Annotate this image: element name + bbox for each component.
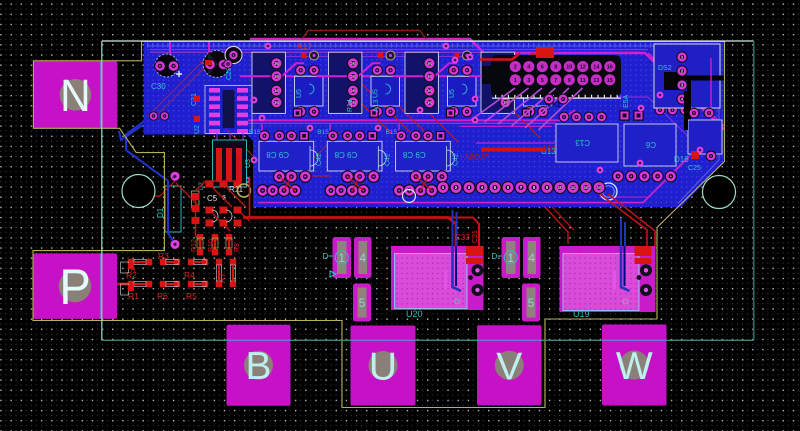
svg-text:D: D xyxy=(323,252,329,261)
svg-text:9: 9 xyxy=(568,78,571,84)
svg-text:R3: R3 xyxy=(158,251,169,261)
svg-text:7: 7 xyxy=(554,78,557,84)
svg-text:R17: R17 xyxy=(297,42,312,51)
svg-text:15: 15 xyxy=(607,78,613,84)
svg-text:C42: C42 xyxy=(384,153,391,166)
svg-text:W: W xyxy=(616,345,653,388)
svg-text:C9 C8: C9 C8 xyxy=(334,150,357,159)
svg-text:7SO6A I: 7SO6A I xyxy=(460,153,490,162)
svg-text:16: 16 xyxy=(274,61,280,66)
svg-text:R14: R14 xyxy=(347,99,354,112)
svg-text:B15: B15 xyxy=(317,129,329,136)
svg-text:16: 16 xyxy=(274,100,280,105)
svg-text:C42: C42 xyxy=(316,153,323,166)
svg-text:16: 16 xyxy=(274,74,280,79)
svg-text:12: 12 xyxy=(583,185,589,190)
svg-text:5: 5 xyxy=(541,78,544,84)
svg-text:16: 16 xyxy=(274,88,280,93)
svg-text:13: 13 xyxy=(593,78,599,84)
svg-text:16: 16 xyxy=(350,61,356,66)
svg-text:3: 3 xyxy=(527,78,530,84)
svg-text:A13: A13 xyxy=(373,99,380,112)
svg-text:4: 4 xyxy=(359,251,366,265)
svg-text:11: 11 xyxy=(580,78,586,84)
svg-text:D16: D16 xyxy=(674,155,689,164)
svg-text:P: P xyxy=(59,260,90,316)
svg-text:R5: R5 xyxy=(186,291,197,301)
svg-text:U3: U3 xyxy=(245,159,252,168)
svg-text:8: 8 xyxy=(554,65,557,71)
svg-text:R9: R9 xyxy=(234,243,241,252)
svg-text:C28: C28 xyxy=(226,67,233,80)
svg-text:C9 C8: C9 C8 xyxy=(266,150,289,159)
svg-text:C31: C31 xyxy=(472,230,479,243)
svg-text:16: 16 xyxy=(350,74,356,79)
svg-text:14: 14 xyxy=(593,65,600,71)
svg-text:U19: U19 xyxy=(573,309,590,319)
svg-text:R12: R12 xyxy=(191,239,198,252)
svg-text:C25: C25 xyxy=(688,165,701,172)
svg-text:DS2: DS2 xyxy=(658,65,672,72)
svg-text:C5: C5 xyxy=(207,194,218,203)
svg-text:1: 1 xyxy=(507,251,514,265)
svg-text:1: 1 xyxy=(338,251,345,265)
svg-text:12: 12 xyxy=(580,65,586,71)
svg-text:R1: R1 xyxy=(128,291,139,301)
svg-text:16: 16 xyxy=(607,65,613,71)
svg-text:16: 16 xyxy=(427,88,433,93)
svg-text:D: D xyxy=(492,252,498,261)
svg-text:N: N xyxy=(60,71,91,121)
svg-text:16: 16 xyxy=(427,61,433,66)
svg-text:D1: D1 xyxy=(156,207,165,218)
svg-text:H: H xyxy=(131,268,135,274)
svg-text:U20: U20 xyxy=(406,309,423,319)
svg-text:16: 16 xyxy=(427,100,433,105)
svg-text:U: U xyxy=(369,346,397,389)
svg-text:B: B xyxy=(245,345,271,388)
svg-text:R: R xyxy=(172,175,175,180)
svg-text:16: 16 xyxy=(350,88,356,93)
svg-text:C33: C33 xyxy=(455,233,470,242)
svg-text:5: 5 xyxy=(528,296,535,310)
svg-text:V: V xyxy=(496,345,522,388)
svg-text:U5: U5 xyxy=(449,89,456,98)
svg-text:U2: U2 xyxy=(194,125,201,134)
svg-text:C6: C6 xyxy=(645,140,656,149)
svg-text:R10: R10 xyxy=(208,239,215,252)
svg-text:4: 4 xyxy=(528,251,535,265)
svg-text:R7: R7 xyxy=(218,272,227,283)
svg-text:E5A: E5A xyxy=(623,94,630,108)
svg-text:1: 1 xyxy=(514,78,517,84)
svg-text:2: 2 xyxy=(514,65,517,71)
svg-text:C42: C42 xyxy=(453,153,460,166)
svg-text:10: 10 xyxy=(557,185,563,190)
svg-text:6: 6 xyxy=(541,65,544,71)
svg-text:U5: U5 xyxy=(373,89,380,98)
svg-text:R6: R6 xyxy=(157,291,168,301)
svg-text:B15: B15 xyxy=(249,129,261,136)
svg-text:10: 10 xyxy=(566,65,572,71)
svg-text:16: 16 xyxy=(427,74,433,79)
svg-text:C9 C8: C9 C8 xyxy=(402,150,425,159)
svg-text:13: 13 xyxy=(596,185,602,190)
svg-text:5: 5 xyxy=(359,296,366,310)
svg-text:U5: U5 xyxy=(296,89,303,98)
svg-text:B15: B15 xyxy=(386,129,398,136)
svg-text:R4: R4 xyxy=(184,270,195,280)
svg-text:C30: C30 xyxy=(151,82,166,91)
svg-text:C13: C13 xyxy=(575,138,590,147)
svg-text:D15: D15 xyxy=(542,146,555,153)
svg-text:11: 11 xyxy=(571,185,576,190)
